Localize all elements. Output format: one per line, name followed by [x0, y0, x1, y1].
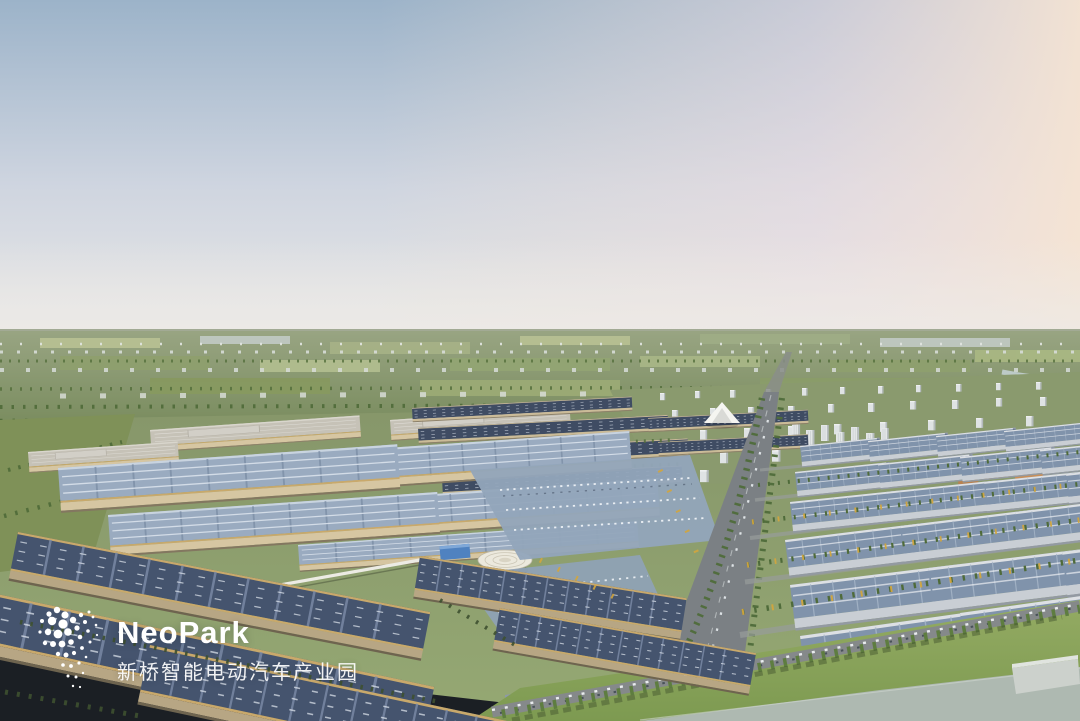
- aerial-rendering: NeoPark 新桥智能电动汽车产业园: [0, 0, 1080, 721]
- neopark-logo: NeoPark 新桥智能电动汽车产业园: [34, 606, 359, 696]
- logo-wordmark: NeoPark: [117, 617, 359, 648]
- sky: [0, 0, 1080, 340]
- neopark-logo-text: NeoPark 新桥智能电动汽车产业园: [117, 617, 359, 685]
- glass-office-building: [439, 544, 470, 561]
- neopark-logo-icon: [34, 606, 104, 696]
- logo-subtitle: 新桥智能电动汽车产业园: [117, 656, 359, 685]
